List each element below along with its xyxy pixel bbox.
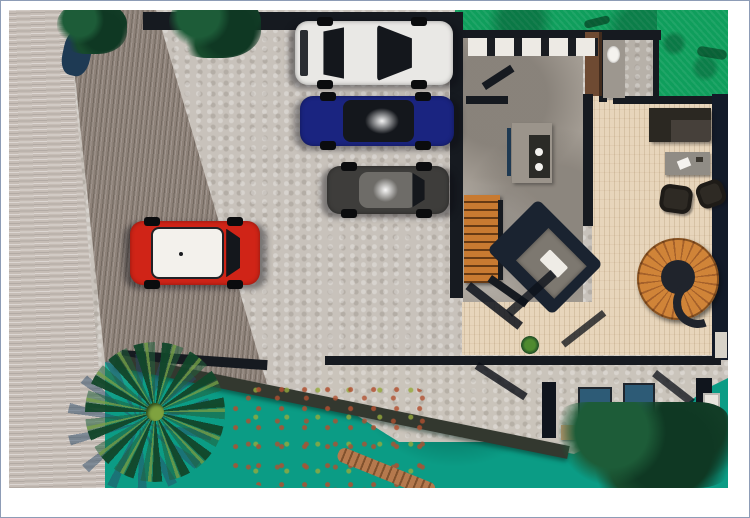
island-countertop: [529, 135, 550, 178]
red-mini-suv: [128, 216, 262, 290]
wheel: [317, 17, 333, 26]
wheel: [227, 217, 243, 226]
coffee-table: [665, 152, 710, 175]
palm-tree: [75, 346, 251, 488]
windshield: [377, 25, 412, 81]
table-paper: [677, 157, 691, 170]
wheel: [144, 217, 160, 226]
white-sports-car: [293, 16, 455, 90]
sofa-chaise: [649, 120, 671, 142]
sofa: [649, 108, 711, 142]
wheel: [341, 209, 357, 218]
roof-glare: [373, 178, 397, 201]
deck-plant: [521, 336, 539, 354]
roof-glare: [365, 108, 399, 134]
kitchen-cabinet-row: [468, 38, 598, 56]
wheel: [411, 17, 427, 26]
wheel: [317, 80, 333, 89]
windshield: [412, 173, 424, 208]
bathroom-sink: [607, 46, 620, 63]
wheel: [144, 280, 160, 289]
palm-crown: [146, 403, 164, 421]
island-sink: [535, 163, 543, 171]
living-north-wall: [613, 96, 715, 104]
architectural-render: [9, 10, 728, 488]
wheel: [227, 280, 243, 289]
wheel: [320, 92, 336, 101]
spiral-staircase: [637, 238, 719, 320]
table-object: [696, 157, 703, 162]
bathroom-north-wall: [599, 30, 661, 40]
wheel: [416, 162, 432, 171]
wheel: [415, 141, 431, 150]
white-roof: [151, 227, 224, 279]
kitchen-living-wall: [583, 94, 593, 226]
vegetation-bottom-right: [557, 402, 728, 488]
car-body: [300, 96, 454, 146]
straight-staircase: [464, 195, 500, 283]
armchair: [658, 183, 694, 215]
car-body: [327, 166, 449, 214]
kitchen-island: [512, 123, 552, 183]
rear-spoiler: [300, 30, 308, 76]
sofa-back: [649, 108, 711, 120]
wheel: [411, 80, 427, 89]
car-body: [130, 221, 260, 285]
wheel: [341, 162, 357, 171]
wheel: [415, 92, 431, 101]
rear-window: [323, 27, 344, 78]
blue-sedan: [298, 91, 456, 151]
tree-canopy-top: [169, 10, 261, 58]
east-steps: [715, 332, 727, 358]
charcoal-coupe: [325, 161, 451, 219]
island-sink: [535, 148, 543, 156]
wheel: [320, 141, 336, 150]
planter: [542, 382, 556, 438]
deck-south-wall: [325, 356, 721, 365]
hedge-top-left: [57, 10, 127, 54]
bathroom-east-wall: [653, 40, 659, 102]
entry-partition: [466, 96, 508, 104]
car-body: [295, 21, 453, 85]
wheel: [416, 209, 432, 218]
windshield: [226, 229, 240, 278]
island-bench: [507, 128, 511, 176]
